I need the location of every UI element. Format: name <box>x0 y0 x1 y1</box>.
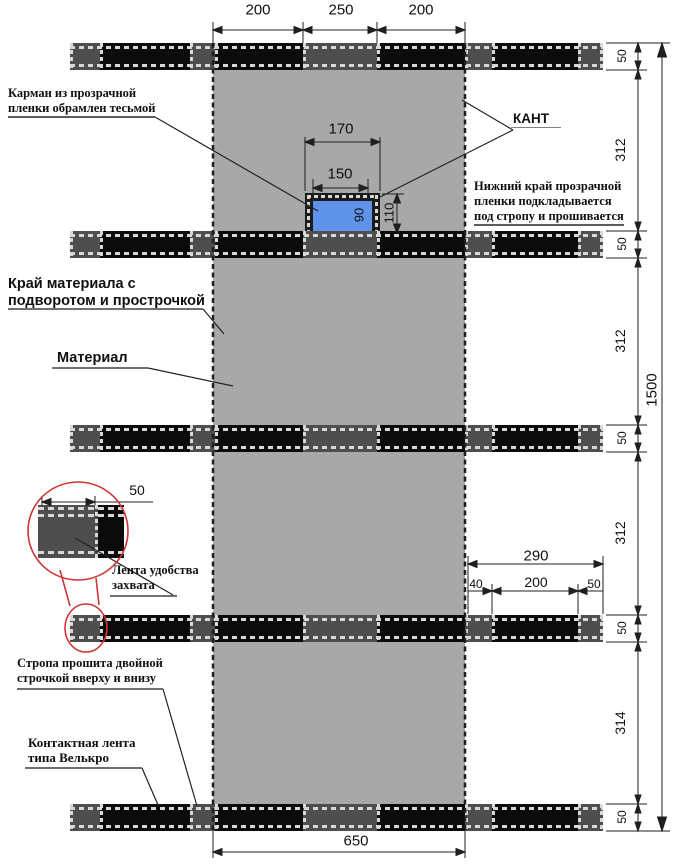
stitch-seam <box>190 615 193 642</box>
stitch-seam <box>578 804 581 831</box>
velcro-label-line2: типа Велькро <box>28 750 109 765</box>
stitch-seam <box>600 615 603 642</box>
stitch-line <box>38 551 124 554</box>
stitch-seam <box>303 804 306 831</box>
stitch-seam <box>492 804 495 831</box>
stitch-seam <box>465 425 468 452</box>
velcro-label: Контактная лента типа Велькро <box>28 735 136 765</box>
dim-offset-left: 40 <box>469 577 482 591</box>
stitch-line <box>70 446 603 449</box>
grip-label-line1: Лента удобства <box>112 563 199 577</box>
stitch-seam <box>100 43 103 70</box>
stitch-seam <box>70 804 73 831</box>
dim-gap2: 312 <box>612 329 628 352</box>
pocket-label-line1: Карман из прозрачной <box>8 86 136 100</box>
stitch-seam <box>377 43 380 70</box>
stitch-seam <box>578 43 581 70</box>
stitch-seam <box>578 231 581 258</box>
stitch-seam <box>70 615 73 642</box>
stitch-seam <box>95 505 98 558</box>
dim-gap4: 314 <box>612 711 628 734</box>
stitch-line <box>70 636 603 639</box>
stitch-seam <box>600 804 603 831</box>
stitch-seam <box>377 804 380 831</box>
dim-top-mid: 250 <box>328 2 353 19</box>
stitch-line <box>70 252 603 255</box>
stitch-seam <box>100 425 103 452</box>
stitch-seam <box>215 231 218 258</box>
dim-grip-width: 50 <box>129 482 145 498</box>
dim-strap1-h: 50 <box>615 49 629 62</box>
stitch-seam <box>100 231 103 258</box>
stitch-seam <box>215 425 218 452</box>
dim-top-left: 200 <box>245 2 270 19</box>
stitch-seam <box>303 425 306 452</box>
dim-strap5-h: 50 <box>615 810 629 823</box>
dim-pocket-inner-w: 150 <box>327 166 352 183</box>
pocket-label: Карман из прозрачной пленки обрамлен тес… <box>8 86 155 118</box>
technical-drawing: Карман из прозрачной пленки обрамлен тес… <box>0 0 674 866</box>
film-note-line3: под стропу и прошивается <box>474 209 624 226</box>
film-note-line1: Нижний край прозрачной <box>474 179 621 193</box>
stitch-seam <box>465 231 468 258</box>
stitch-line <box>307 195 310 231</box>
stitch-seam <box>100 804 103 831</box>
strap-stitch-label: Стропа прошита двойной строчкой вверху и… <box>17 656 163 686</box>
strap-band-1 <box>70 43 603 70</box>
strap-band-4 <box>70 615 603 642</box>
stitch-seam <box>578 425 581 452</box>
stitch-seam <box>492 43 495 70</box>
stitch-line <box>70 825 603 828</box>
material-edge-line1: Край материала с <box>8 276 136 292</box>
dim-pocket-outer-w: 170 <box>328 121 353 138</box>
stitch-line <box>38 514 124 517</box>
dim-bottom-width: 650 <box>343 833 368 850</box>
strap-band-5 <box>70 804 603 831</box>
dim-strap2-h: 50 <box>615 237 629 250</box>
dim-offset-total: 290 <box>523 548 548 565</box>
stitch-seam <box>70 231 73 258</box>
strap-label-line2: строчкой вверху и внизу <box>17 671 156 685</box>
stitch-seam <box>303 615 306 642</box>
stitch-seam <box>578 615 581 642</box>
dim-gap3: 312 <box>612 521 628 544</box>
film-note-line2: пленки подкладывается <box>474 194 612 208</box>
stitch-line <box>70 807 603 810</box>
stitch-seam <box>600 425 603 452</box>
dim-total-height: 1500 <box>644 373 661 406</box>
stitch-seam <box>70 425 73 452</box>
stitch-seam <box>190 43 193 70</box>
velcro-label-line1: Контактная лента <box>28 735 136 750</box>
dim-strap3-h: 50 <box>615 431 629 444</box>
stitch-line <box>307 195 378 198</box>
stitch-seam <box>215 804 218 831</box>
grip-tape-detail <box>38 505 124 558</box>
strap-label-line1: Стропа прошита двойной <box>17 656 163 670</box>
stitch-seam <box>190 231 193 258</box>
dim-pocket-outer-h: 110 <box>382 203 397 224</box>
film-edge-note: Нижний край прозрачной пленки подкладыва… <box>474 179 624 226</box>
stitch-seam <box>70 43 73 70</box>
stitch-line <box>375 195 378 231</box>
dim-gap1: 312 <box>612 138 628 161</box>
material-edge-line2: подворотом и прострочкой <box>8 293 205 309</box>
stitch-line <box>70 64 603 67</box>
stitch-seam <box>215 615 218 642</box>
stitch-seam <box>377 425 380 452</box>
stitch-seam <box>600 43 603 70</box>
dim-strap4-h: 50 <box>615 621 629 634</box>
stitch-seam <box>465 804 468 831</box>
stitch-seam <box>377 231 380 258</box>
stitch-seam <box>465 615 468 642</box>
material-label: Материал <box>57 350 128 367</box>
stitch-seam <box>303 231 306 258</box>
stitch-line <box>38 507 124 510</box>
material-edge-label: Край материала с подворотом и прострочко… <box>8 276 205 310</box>
stitch-seam <box>600 231 603 258</box>
dim-offset-right: 50 <box>587 577 600 591</box>
stitch-line <box>70 618 603 621</box>
strap-band-3 <box>70 425 603 452</box>
stitch-seam <box>190 425 193 452</box>
stitch-seam <box>465 43 468 70</box>
dim-offset-mid: 200 <box>524 574 547 590</box>
stitch-seam <box>492 615 495 642</box>
stitch-seam <box>215 43 218 70</box>
grip-label-line2: захвата <box>112 578 155 592</box>
pocket-label-line2: пленки обрамлен тесьмой <box>8 101 155 118</box>
stitch-seam <box>492 425 495 452</box>
stitch-line <box>70 46 603 49</box>
stitch-seam <box>492 231 495 258</box>
stitch-line <box>70 428 603 431</box>
stitch-seam <box>190 804 193 831</box>
kant-label: КАНТ <box>511 111 561 128</box>
grip-tape-label: Лента удобства захвата <box>112 563 199 593</box>
stitch-seam <box>303 43 306 70</box>
dim-top-right: 200 <box>408 2 433 19</box>
strap-band-2 <box>70 231 603 258</box>
stitch-seam <box>100 615 103 642</box>
dim-pocket-inner-h: 90 <box>352 208 367 222</box>
stitch-line <box>70 234 603 237</box>
stitch-seam <box>377 615 380 642</box>
